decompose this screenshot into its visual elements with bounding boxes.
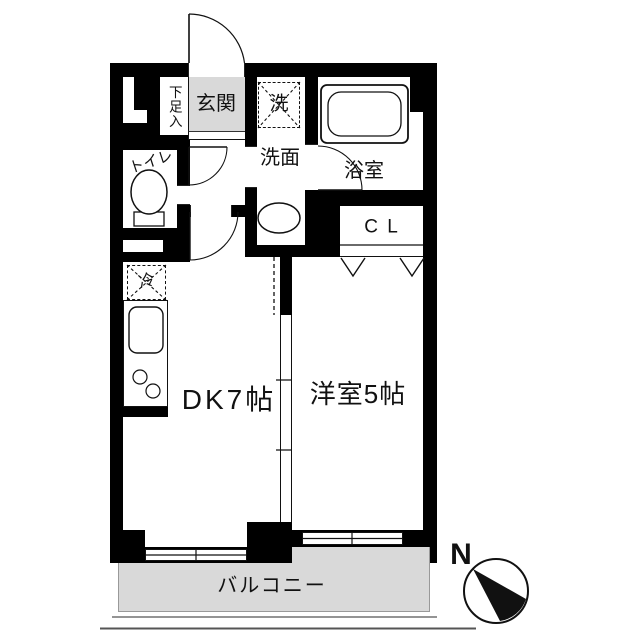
wall-right [423, 63, 437, 563]
hall-dk-doorway [190, 205, 232, 217]
wall-toilet-corner [177, 217, 190, 228]
washer-label: 洗 [269, 95, 288, 114]
senmen-label: 洗面 [260, 148, 300, 168]
sliding-door-partition [280, 315, 292, 522]
wall-bath-bottom [318, 190, 423, 206]
entrance-doorway [188, 63, 245, 77]
toilet-label: トイレ [127, 148, 174, 176]
washbasin-icon [258, 203, 300, 233]
toilet-doorway [177, 185, 190, 205]
closet-folding-door-icon [341, 258, 424, 276]
compass-icon [464, 559, 528, 623]
genkan-label: 玄関 [196, 94, 236, 114]
floorplan: 下足入 玄関 洗 洗面 浴室 トイレ C L 冷 DK7帖 洋室5帖 バルコニー… [0, 0, 640, 640]
toilet-door-icon [189, 147, 227, 185]
kitchen-counter [123, 300, 168, 407]
wall-left [110, 77, 123, 563]
entrance-door-icon [189, 14, 245, 63]
senmen-opening [245, 146, 257, 188]
bathtub-icon [321, 85, 408, 143]
meterbox-notch-horizontal [123, 110, 147, 123]
wall-partition-upper [280, 250, 292, 315]
wall-senmen-bottom [245, 245, 340, 257]
closet-label: C L [364, 218, 400, 237]
hall-dk-door-icon [190, 212, 238, 260]
shoe-storage-label: 下足入 [167, 85, 181, 129]
wall-top-right [245, 63, 437, 77]
bath-label: 浴室 [344, 161, 384, 181]
wall-right-step [410, 70, 423, 112]
wall-partition-bottom [247, 522, 292, 563]
western-room-label: 洋室5帖 [310, 381, 406, 407]
compass-north-label: N [450, 540, 472, 570]
dk-balcony-window [145, 549, 247, 561]
bath-doorway [305, 144, 318, 190]
toilet-wall-niche [123, 240, 163, 252]
wall-toilet-east [177, 135, 190, 185]
dk-label: DK7帖 [182, 386, 276, 414]
toilet-fixture-icon [131, 170, 167, 226]
balcony-label: バルコニー [217, 576, 327, 596]
yoshitsu-balcony-window [302, 532, 403, 545]
genkan-step [188, 132, 245, 140]
